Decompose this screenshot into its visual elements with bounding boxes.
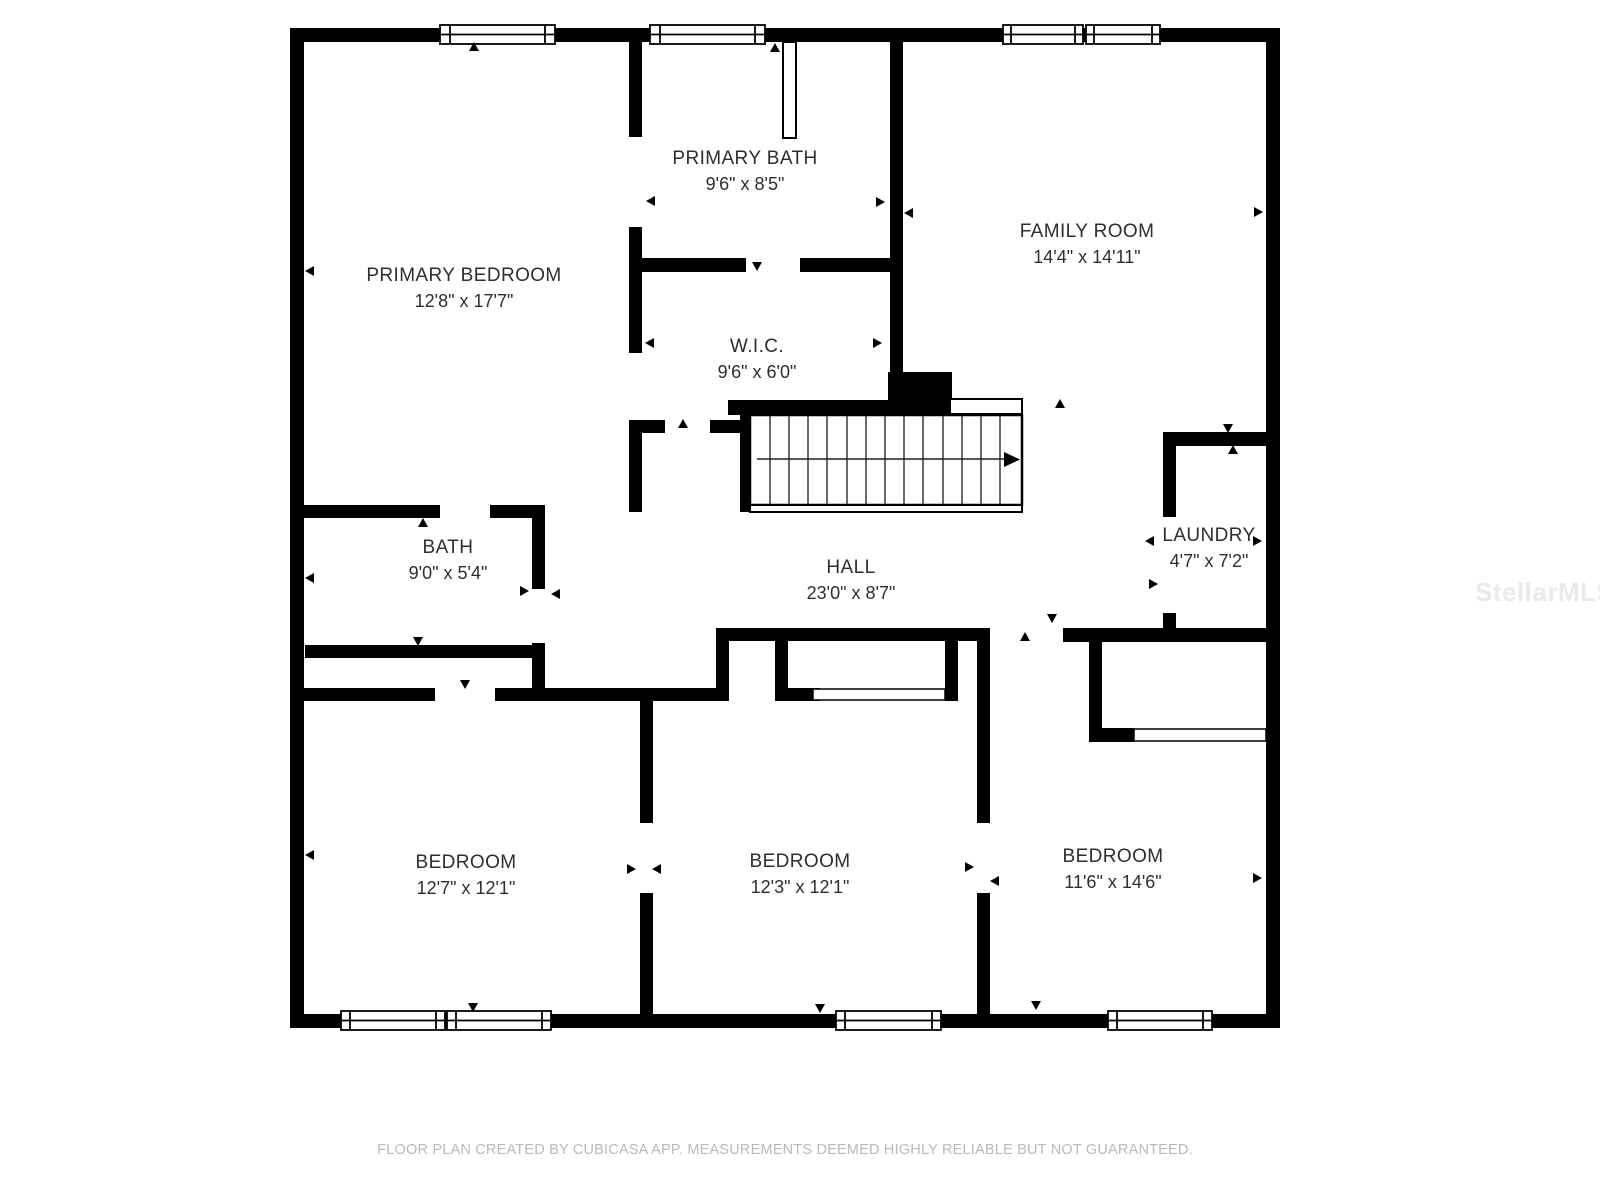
room-label-laundry: LAUNDRY 4'7" x 7'2" [1162, 523, 1255, 573]
room-dimensions: 23'0" x 8'7" [807, 581, 896, 605]
window [447, 1011, 551, 1030]
window [1003, 25, 1083, 44]
room-dimensions: 9'6" x 6'0" [718, 360, 797, 384]
room-name: BATH [409, 535, 488, 561]
footer-disclaimer: FLOOR PLAN CREATED BY CUBICASA APP. MEAS… [377, 1142, 1193, 1158]
room-dimensions: 12'7" x 12'1" [416, 876, 517, 900]
room-name: LAUNDRY [1162, 523, 1255, 549]
room-label-bedroom-middle: BEDROOM 12'3" x 12'1" [750, 849, 851, 899]
closet-sliding-door [813, 689, 945, 700]
room-name: FAMILY ROOM [1020, 219, 1155, 245]
window [341, 1011, 445, 1030]
closet-sliding-door [1134, 729, 1266, 741]
stair-open-edge [950, 399, 1022, 414]
room-dimensions: 12'8" x 17'7" [366, 289, 561, 313]
room-label-primary-bedroom: PRIMARY BEDROOM 12'8" x 17'7" [366, 263, 561, 313]
room-name: PRIMARY BATH [672, 146, 817, 172]
room-dimensions: 11'6" x 14'6" [1063, 870, 1164, 894]
room-name: HALL [807, 555, 896, 581]
room-dimensions: 4'7" x 7'2" [1162, 549, 1255, 573]
window [1086, 25, 1160, 44]
staircase [750, 415, 1022, 512]
room-name: BEDROOM [416, 850, 517, 876]
stellar-mls-watermark: StellarMLS [1475, 577, 1600, 608]
room-name: PRIMARY BEDROOM [366, 263, 561, 289]
stair-bottom-rail [750, 505, 1022, 512]
window [440, 25, 555, 44]
room-label-bath: BATH 9'0" x 5'4" [409, 535, 488, 585]
window [836, 1011, 941, 1030]
room-label-primary-bath: PRIMARY BATH 9'6" x 8'5" [672, 146, 817, 196]
floor-plan-page: PRIMARY BATH 9'6" x 8'5" PRIMARY BEDROOM… [0, 0, 1600, 1200]
room-label-bedroom-right: BEDROOM 11'6" x 14'6" [1063, 844, 1164, 894]
shower-glass-panel [783, 42, 796, 138]
room-name: BEDROOM [1063, 844, 1164, 870]
room-dimensions: 9'6" x 8'5" [672, 172, 817, 196]
room-dimensions: 12'3" x 12'1" [750, 875, 851, 899]
room-label-family-room: FAMILY ROOM 14'4" x 14'11" [1020, 219, 1155, 269]
window [1108, 1011, 1212, 1030]
room-label-wic: W.I.C. 9'6" x 6'0" [718, 334, 797, 384]
room-dimensions: 9'0" x 5'4" [409, 561, 488, 585]
room-dimensions: 14'4" x 14'11" [1020, 245, 1155, 269]
room-name: BEDROOM [750, 849, 851, 875]
room-name: W.I.C. [718, 334, 797, 360]
window [650, 25, 765, 44]
room-label-hall: HALL 23'0" x 8'7" [807, 555, 896, 605]
room-label-bedroom-left: BEDROOM 12'7" x 12'1" [416, 850, 517, 900]
